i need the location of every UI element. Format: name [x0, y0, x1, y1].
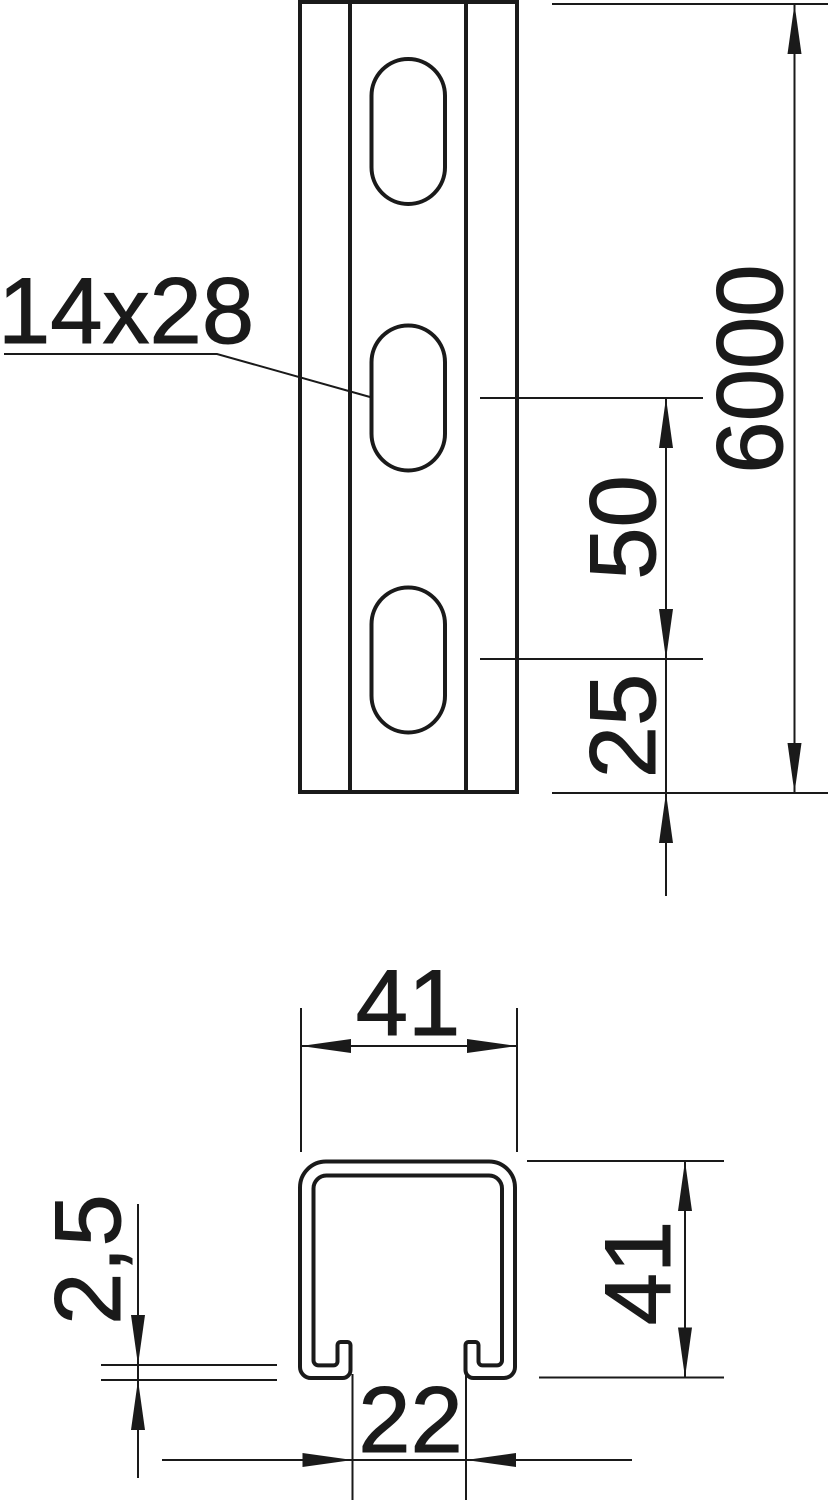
svg-text:22: 22: [358, 1367, 463, 1472]
svg-text:41: 41: [356, 950, 461, 1055]
svg-text:50: 50: [570, 475, 675, 580]
svg-text:14x28: 14x28: [0, 258, 254, 363]
svg-text:41: 41: [585, 1221, 690, 1326]
svg-text:2,5: 2,5: [35, 1194, 140, 1325]
svg-text:6000: 6000: [697, 264, 802, 473]
svg-text:25: 25: [570, 674, 675, 779]
